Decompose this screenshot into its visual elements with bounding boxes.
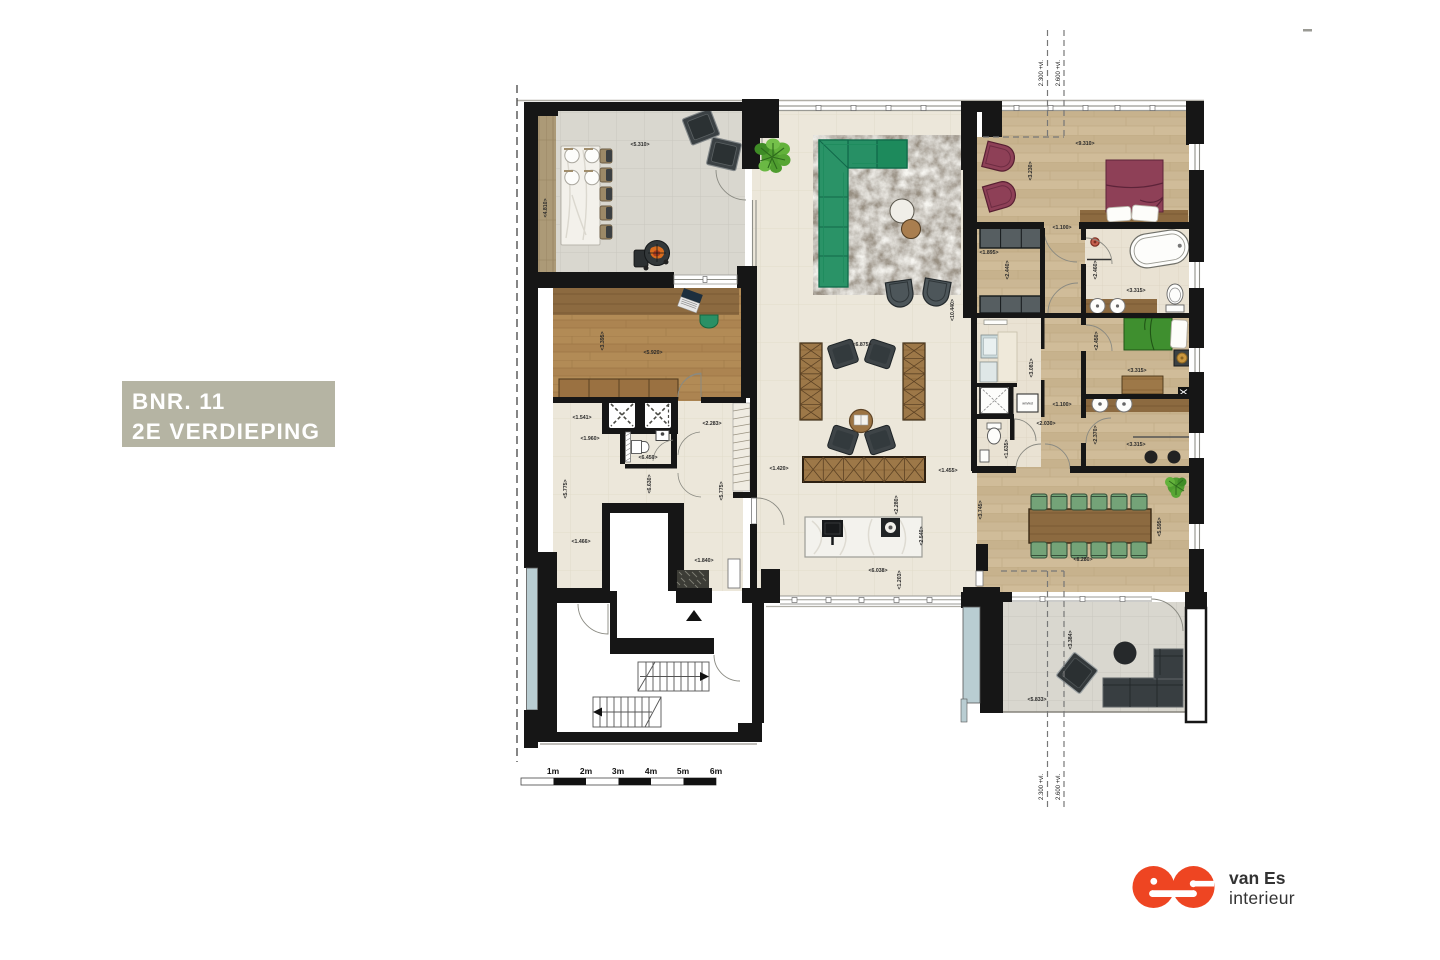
svg-text:2.300 +vl.: 2.300 +vl. [1039, 773, 1045, 800]
svg-text:<9.310>: <9.310> [1075, 141, 1094, 147]
svg-text:6m: 6m [710, 766, 723, 776]
svg-text:<4.810>: <4.810> [543, 198, 549, 217]
svg-text:4m: 4m [645, 766, 658, 776]
svg-text:<1.420>: <1.420> [769, 466, 788, 472]
svg-text:<5.310>: <5.310> [630, 142, 649, 148]
svg-text:<1.541>: <1.541> [572, 415, 591, 421]
svg-text:<2.030>: <2.030> [1036, 421, 1055, 427]
svg-text:interieur: interieur [1229, 888, 1295, 908]
svg-text:<2.283>: <2.283> [702, 421, 721, 427]
svg-text:<3.081>: <3.081> [1029, 358, 1035, 377]
svg-text:<1.635>: <1.635> [1004, 439, 1010, 458]
svg-text:2.600 +vl.: 2.600 +vl. [1056, 60, 1062, 87]
svg-text:2.300 +vl.: 2.300 +vl. [1039, 60, 1045, 87]
svg-text:<5.775>: <5.775> [719, 481, 725, 500]
svg-text:<2.370>: <2.370> [1093, 425, 1099, 444]
svg-text:3m: 3m [612, 766, 625, 776]
svg-text:<5.595>: <5.595> [1157, 517, 1163, 536]
svg-text:<2.460>: <2.460> [1093, 260, 1099, 279]
svg-text:<2.540>: <2.540> [919, 526, 925, 545]
svg-text:<6.450>: <6.450> [638, 455, 657, 461]
svg-text:<10.440>: <10.440> [950, 299, 956, 321]
svg-text:wm/wd: wm/wd [1022, 402, 1033, 406]
svg-text:<1.960>: <1.960> [580, 436, 599, 442]
svg-text:<5.920>: <5.920> [643, 350, 662, 356]
svg-text:<6.038>: <6.038> [868, 568, 887, 574]
svg-text:<1.895>: <1.895> [979, 250, 998, 256]
svg-text:2m: 2m [580, 766, 593, 776]
svg-text:<6.630>: <6.630> [647, 474, 653, 493]
svg-text:<1.100>: <1.100> [1052, 402, 1071, 408]
svg-text:<2.440>: <2.440> [1005, 260, 1011, 279]
svg-text:<1.455>: <1.455> [938, 468, 957, 474]
svg-text:2.600 +vl.: 2.600 +vl. [1056, 773, 1062, 800]
svg-text:<1.203>: <1.203> [897, 570, 903, 589]
svg-text:<6.280>: <6.280> [1073, 557, 1092, 563]
svg-text:<3.395>: <3.395> [600, 331, 606, 350]
svg-text:5m: 5m [677, 766, 690, 776]
svg-text:<1.466>: <1.466> [571, 539, 590, 545]
svg-text:<5.775>: <5.775> [563, 479, 569, 498]
svg-text:<3.315>: <3.315> [1126, 288, 1145, 294]
svg-text:2E VERDIEPING: 2E VERDIEPING [132, 419, 320, 444]
svg-text:BNR. 11: BNR. 11 [132, 389, 225, 414]
svg-text:<2.450>: <2.450> [1094, 331, 1100, 350]
svg-text:<3.230>: <3.230> [1028, 161, 1034, 180]
svg-text:<2.280>: <2.280> [894, 495, 900, 514]
svg-text:<1.840>: <1.840> [694, 558, 713, 564]
svg-text:<3.315>: <3.315> [1126, 442, 1145, 448]
svg-text:1m: 1m [547, 766, 560, 776]
svg-text:<3.384>: <3.384> [1068, 630, 1074, 649]
svg-text:<3.315>: <3.315> [1127, 368, 1146, 374]
svg-text:<5.833>: <5.833> [1027, 697, 1046, 703]
svg-text:van Es: van Es [1229, 868, 1286, 888]
svg-text:<3.745>: <3.745> [978, 500, 984, 519]
svg-text:<6.875>: <6.875> [852, 342, 871, 348]
svg-text:<1.100>: <1.100> [1052, 225, 1071, 231]
